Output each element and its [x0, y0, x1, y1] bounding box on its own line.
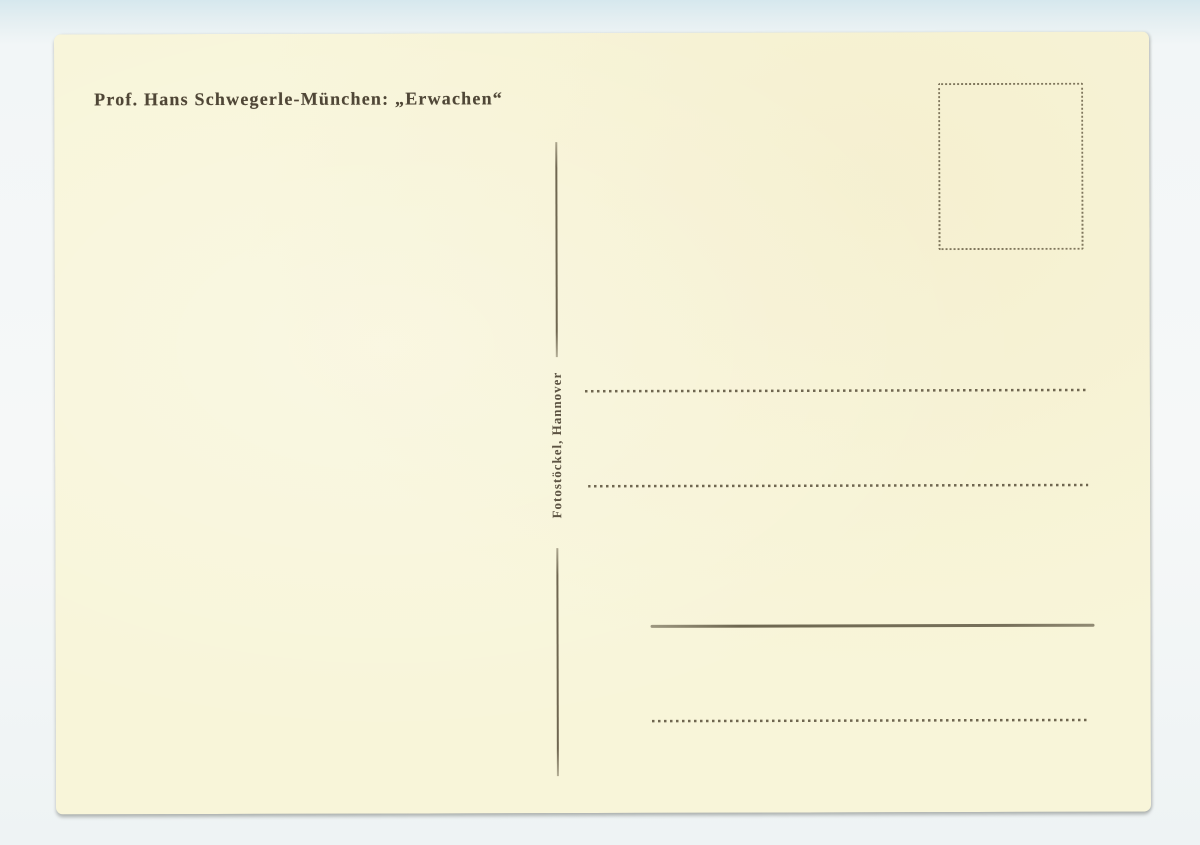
postcard-back: Prof. Hans Schwegerle-München: „Erwachen… — [54, 32, 1151, 815]
artwork-caption: Prof. Hans Schwegerle-München: „Erwachen… — [94, 88, 503, 110]
address-line-2 — [588, 484, 1088, 488]
address-line-3 — [652, 719, 1089, 723]
divider-line-lower — [556, 548, 559, 776]
stamp-box — [938, 83, 1083, 250]
address-line-1 — [585, 389, 1087, 393]
separator-line — [651, 624, 1095, 628]
divider-line-upper — [555, 142, 558, 357]
publisher-imprint: Fotostöckel, Hannover — [547, 357, 567, 533]
